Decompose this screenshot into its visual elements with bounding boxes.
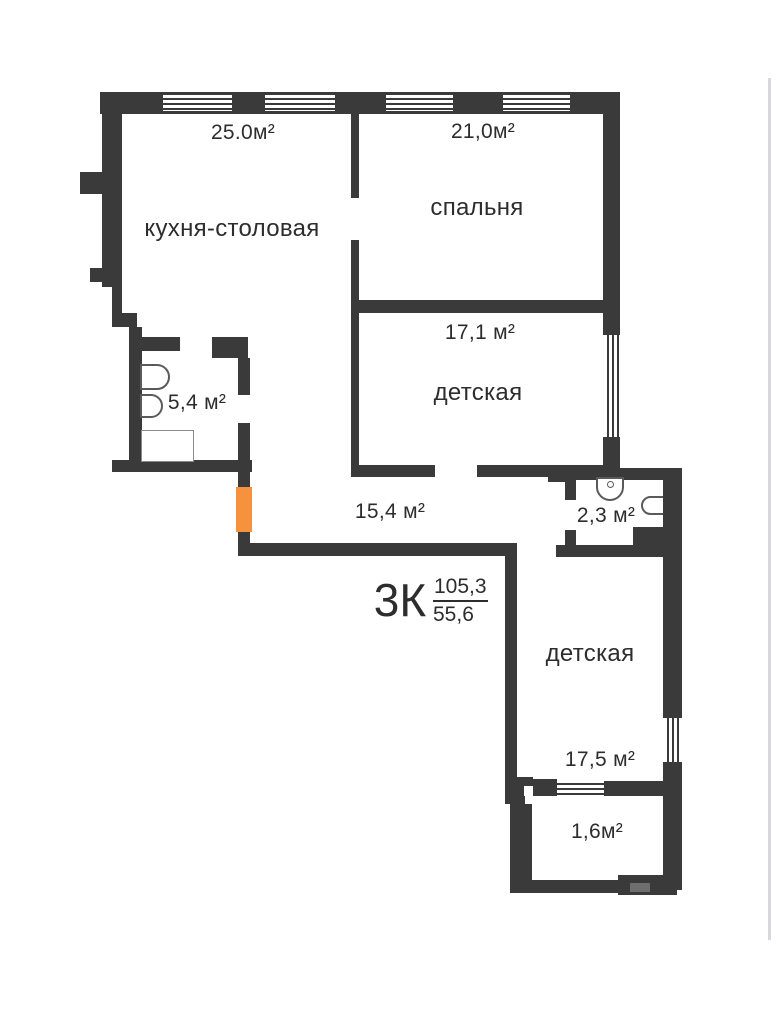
area-nursery1: 17,1 м²	[445, 321, 515, 345]
page-edge-line	[768, 78, 771, 940]
wall-pilaster	[90, 268, 102, 282]
wall-bath2-bottom	[556, 545, 633, 557]
window-icon	[386, 95, 453, 111]
wall-kitchen-nursery	[351, 240, 359, 467]
wall-left	[102, 92, 122, 287]
area-nursery2: 17,5 м²	[565, 748, 635, 772]
wall-bath2-left	[565, 480, 576, 500]
wall-bath1-top	[212, 337, 248, 358]
wall-right-lower	[663, 762, 682, 890]
wall-balcony-divider	[604, 781, 663, 796]
wall-balcony-bottom	[532, 880, 620, 893]
wall-bath1-right	[238, 358, 250, 395]
washer-icon	[141, 430, 194, 462]
window-icon	[503, 95, 570, 111]
wall-bath1-top	[142, 337, 180, 351]
sink-icon	[641, 496, 665, 515]
balcony-door-tick	[517, 796, 525, 804]
wall-jog	[112, 313, 137, 327]
balcony-door-notch	[524, 786, 533, 804]
room-label-nursery2: детская	[546, 640, 635, 668]
room-label-nursery1: детская	[434, 379, 523, 407]
floor-plan: 25.0м² кухня-столовая 21,0м² спальня 17,…	[0, 0, 776, 1024]
area-bath1: 5,4 м²	[168, 391, 226, 415]
area-bath2: 2,3 м²	[577, 504, 635, 528]
window-icon	[604, 335, 620, 437]
window-icon	[265, 95, 335, 111]
window-icon	[163, 95, 232, 111]
window-icon	[557, 780, 604, 795]
wall-balcony-divider	[533, 779, 557, 796]
room-label-kitchen: кухня-столовая	[144, 215, 319, 243]
area-hallway: 15,4 м²	[355, 500, 425, 524]
total-area: 105,3	[433, 576, 488, 602]
living-area: 55,6	[433, 602, 488, 626]
wall-right-lower	[663, 468, 682, 718]
entrance-door-marker	[236, 487, 252, 532]
area-balcony: 1,6м²	[571, 820, 623, 844]
area-kitchen: 25.0м²	[211, 121, 275, 145]
wall-nursery-bottom	[351, 465, 435, 477]
wall-bath2-stub	[548, 472, 565, 482]
wall-hall-bottom	[238, 543, 517, 556]
wall-corridor-left	[505, 543, 517, 779]
wall-right-upper	[603, 92, 620, 335]
toilet-flush-dot	[607, 481, 614, 488]
area-fraction: 105,3 55,6	[433, 576, 488, 626]
wall-bedroom-nursery	[355, 300, 620, 313]
apartment-type-label: 3К	[374, 573, 426, 627]
window-icon	[664, 718, 681, 762]
wall-entrance	[238, 423, 250, 487]
wall-balcony-left	[510, 804, 532, 893]
wall-pilaster	[80, 172, 102, 194]
area-bedroom: 21,0м²	[451, 120, 515, 144]
wall-bath2-corner	[633, 527, 665, 557]
room-label-bedroom: спальня	[430, 194, 523, 222]
wall-kitchen-bedroom	[351, 110, 359, 198]
balcony-drain-block	[630, 883, 650, 892]
sink-icon	[140, 394, 163, 418]
toilet-icon	[140, 364, 170, 390]
